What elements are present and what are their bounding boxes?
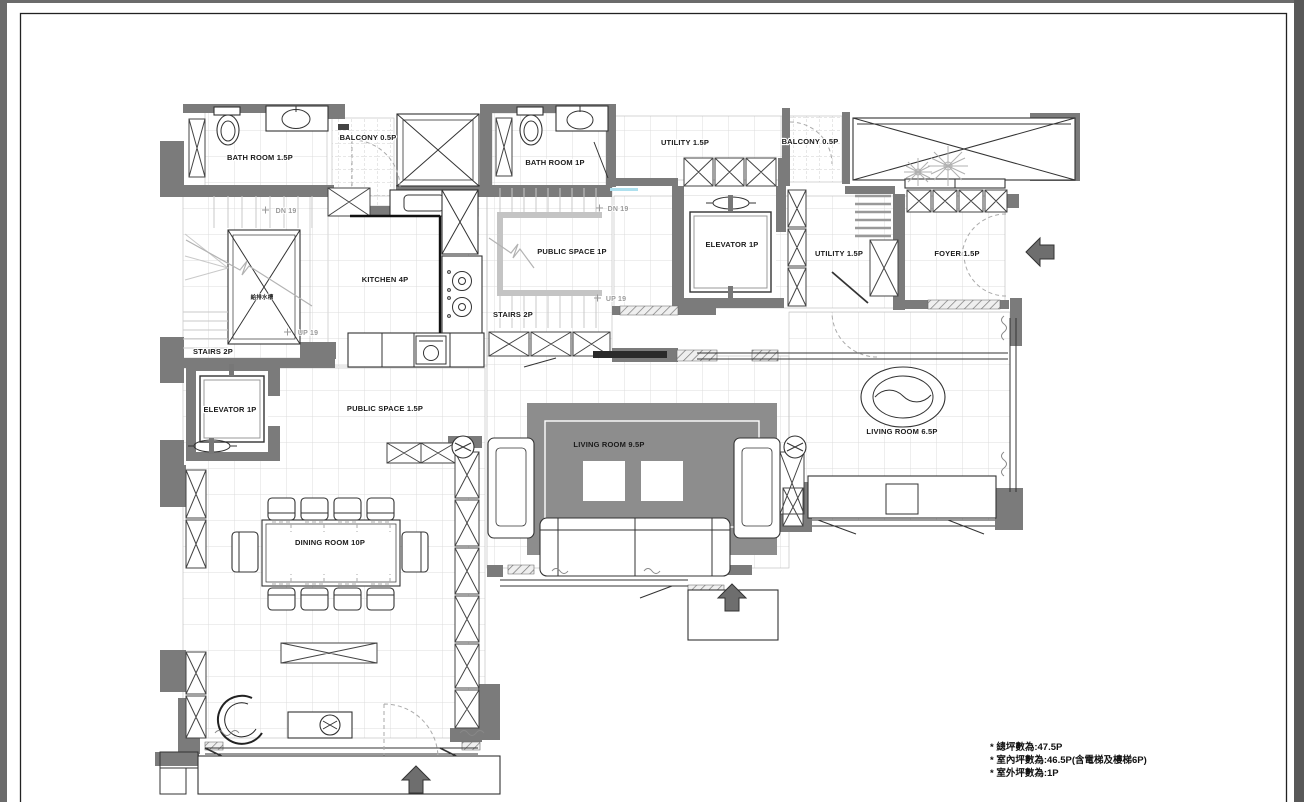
shaft-label: 給排水槽 — [251, 293, 274, 301]
stair-mark-up-left: UP 19 — [298, 330, 318, 337]
balcony-lower — [160, 752, 500, 794]
room-label-balcony1: BALCONY 0.5P — [340, 133, 397, 142]
room-label-utility1: UTILITY 1.5P — [661, 138, 709, 147]
room-label-dining: DINING ROOM 10P — [295, 538, 365, 547]
room-label-public1: PUBLIC SPACE 1P — [537, 247, 607, 256]
room-label-elevator-right: ELEVATOR 1P — [705, 240, 758, 249]
area-note-total: * 總坪數為:47.5P — [990, 741, 1063, 753]
arrow-left-icon — [1026, 238, 1054, 266]
area-notes: * 總坪數為:47.5P * 室內坪數為:46.5P(含電梯及樓梯6P) * 室… — [990, 741, 1147, 779]
room-label-living-main: LIVING ROOM 9.5P — [573, 440, 644, 449]
stair-mark-up-center: UP 19 — [606, 296, 626, 303]
area-note-indoor: * 室內坪數為:46.5P(含電梯及樓梯6P) — [990, 754, 1147, 766]
stair-mark-dn-left: DN 19 — [276, 208, 297, 215]
room-label-stairs-left: STAIRS 2P — [193, 347, 233, 356]
plant-icon — [904, 158, 932, 186]
floor-plan-canvas: BATH ROOM 1.5P BALCONY 0.5P BATH ROOM 1P… — [0, 0, 1304, 802]
stair-mark-dn-center: DN 19 — [608, 206, 629, 213]
room-label-bath1: BATH ROOM 1.5P — [227, 153, 293, 162]
room-label-utility2: UTILITY 1.5P — [815, 249, 863, 258]
plant-icon — [928, 146, 968, 186]
room-label-living-side: LIVING ROOM 6.5P — [866, 427, 937, 436]
area-note-outdoor: * 室外坪數為:1P — [990, 767, 1059, 779]
room-label-elevator-left: ELEVATOR 1P — [203, 405, 256, 414]
room-label-public2: PUBLIC SPACE 1.5P — [347, 404, 423, 413]
room-label-stairs-center: STAIRS 2P — [493, 310, 533, 319]
room-label-bath2: BATH ROOM 1P — [525, 158, 584, 167]
room-label-foyer: FOYER 1.5P — [934, 249, 979, 258]
room-label-kitchen: KITCHEN 4P — [362, 275, 409, 284]
floor-plan-page: BATH ROOM 1.5P BALCONY 0.5P BATH ROOM 1P… — [0, 0, 1304, 802]
room-label-balcony2: BALCONY 0.5P — [782, 137, 839, 146]
